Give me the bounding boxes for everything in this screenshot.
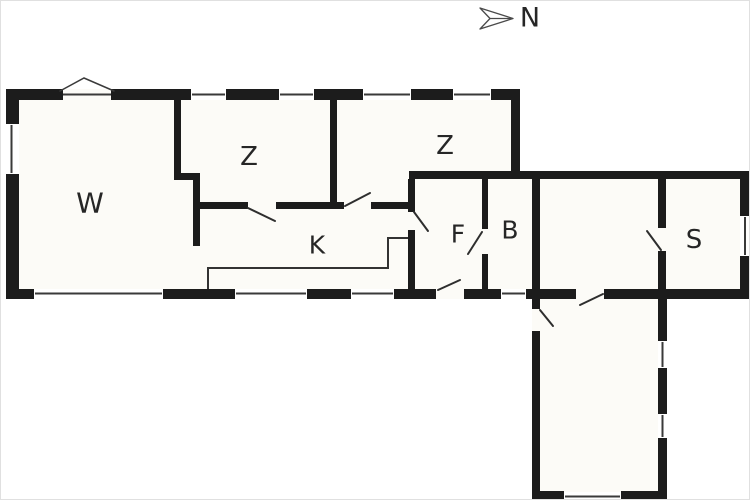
hallway-bathroom-wall-segment xyxy=(482,179,488,229)
wall-step xyxy=(174,173,200,180)
main-right-wall xyxy=(511,89,520,179)
floor-plan: N W Z Z K F B S xyxy=(0,0,750,500)
east-wall-segment xyxy=(740,171,750,216)
left-wall-segment xyxy=(6,174,19,299)
south-wing-bottom-wall xyxy=(532,491,564,500)
room-label-bedroom-2: Z xyxy=(436,131,454,161)
bathroom-right-wall xyxy=(532,179,540,289)
room-label-kitchen: K xyxy=(309,231,326,260)
bedroom3-left-wall-segment xyxy=(658,179,666,228)
bottom-wall-segment xyxy=(307,289,351,299)
kitchen-top-wall-segment xyxy=(194,202,248,209)
hallway-bathroom-wall-segment xyxy=(482,254,488,289)
kitchen-top-wall-segment xyxy=(371,202,409,209)
top-wall-segment xyxy=(111,89,191,100)
east-wing-top-wall xyxy=(409,171,750,179)
entrance-threshold xyxy=(63,94,111,96)
room-label-living-room: W xyxy=(76,187,104,220)
compass: N xyxy=(480,3,540,34)
south-wing-left-wall xyxy=(532,299,540,309)
compass-label: N xyxy=(520,3,540,34)
south-wing-right-wall xyxy=(658,299,667,341)
bottom-wall-segment xyxy=(464,289,501,299)
bottom-wall-segment xyxy=(394,289,436,299)
room-label-bathroom: B xyxy=(501,216,518,245)
top-wall-segment xyxy=(314,89,363,100)
bottom-wall-segment xyxy=(526,289,576,299)
bottom-wall-segment xyxy=(604,289,750,299)
top-wall-segment xyxy=(411,89,453,100)
room-label-bedroom-3: S xyxy=(686,225,703,255)
south-wing-bottom-wall xyxy=(621,491,667,500)
south-wing-right-wall xyxy=(658,438,667,491)
bottom-wall-segment xyxy=(163,289,235,299)
bottom-wall-segment xyxy=(6,289,34,299)
south-wing-right-wall xyxy=(658,368,667,414)
hallway-left-wall-segment xyxy=(408,179,415,212)
south-wing-left-wall xyxy=(532,331,540,499)
left-wall-segment xyxy=(6,89,19,124)
living-bedroom1-wall xyxy=(174,100,181,173)
hallway-left-wall-segment xyxy=(408,230,415,289)
room-label-bedroom-1: Z xyxy=(240,142,258,172)
room-label-hallway: F xyxy=(451,220,465,249)
east-wing-floor xyxy=(511,171,750,299)
floor-plan-drawing: N W Z Z K F B S xyxy=(1,1,750,500)
bedroom1-bedroom2-wall xyxy=(330,100,337,208)
living-kitchen-wall xyxy=(193,180,200,246)
bedroom3-left-wall-segment xyxy=(658,251,666,289)
top-wall-segment xyxy=(226,89,279,100)
east-wall-segment xyxy=(740,256,750,299)
